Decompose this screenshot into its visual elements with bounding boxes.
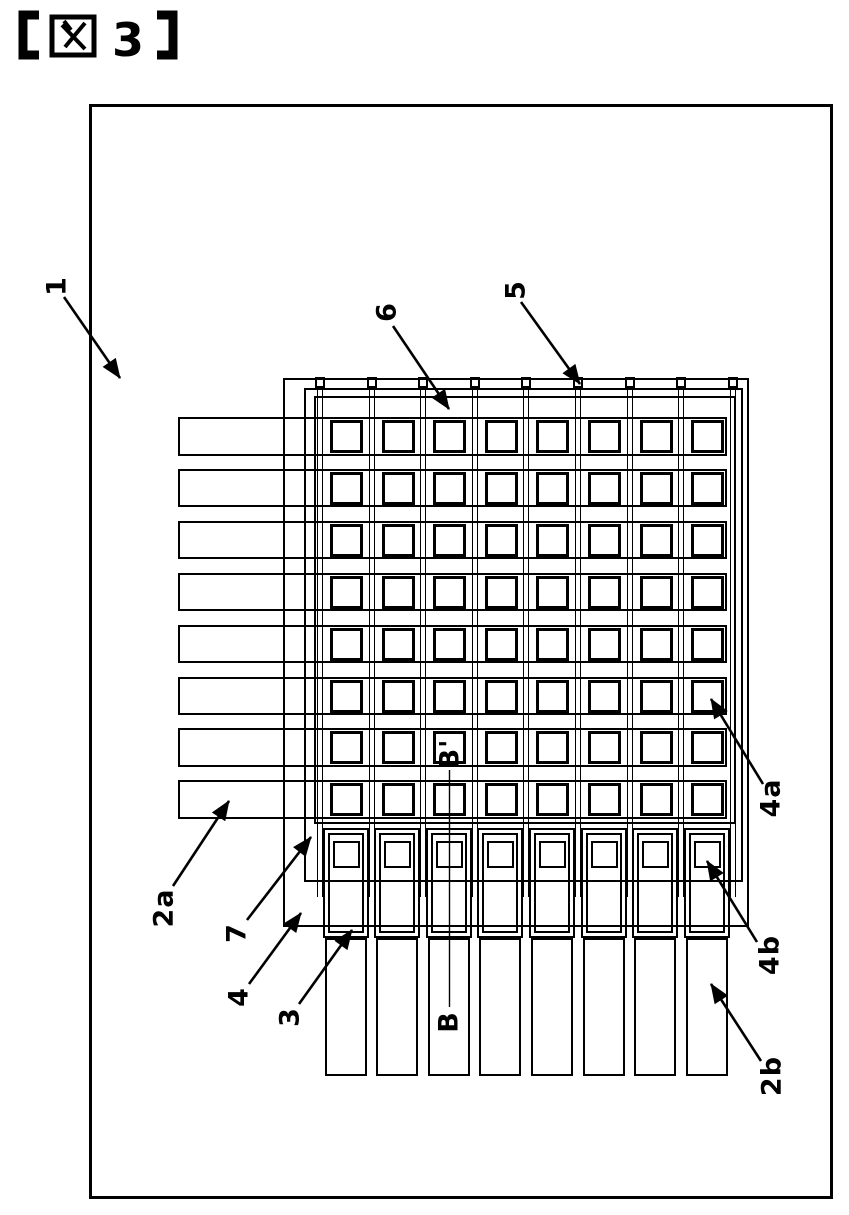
pixel-electrode-square — [485, 731, 518, 764]
pixel-electrode-square — [433, 628, 466, 661]
column-wire — [678, 386, 684, 897]
pixel-electrode-square — [640, 524, 673, 557]
label-4: 4 — [224, 987, 255, 1007]
pixel-electrode-square — [640, 783, 673, 816]
bottom-terminal-bar — [634, 938, 676, 1076]
pixel-electrode-square — [382, 628, 415, 661]
bottom-terminal-bar — [531, 938, 573, 1076]
pixel-electrode-square — [588, 731, 621, 764]
kanji-zu-glyph — [52, 17, 94, 55]
pixel-electrode-square — [640, 576, 673, 609]
pixel-electrode-square — [691, 680, 724, 713]
column-wire — [472, 386, 478, 897]
bracket-open-glyph — [23, 15, 39, 55]
bottom-terminal-bar — [325, 938, 367, 1076]
pixel-electrode-square — [433, 783, 466, 816]
bottom-terminal-bar — [428, 938, 470, 1076]
pixel-electrode-square — [382, 731, 415, 764]
label-4a: 4a — [756, 778, 787, 817]
label-6: 6 — [372, 302, 403, 322]
pixel-electrode-square — [588, 524, 621, 557]
column-wire — [575, 386, 581, 897]
pixel-electrode-square — [640, 420, 673, 453]
figure-title: 3 — [12, 8, 184, 68]
pixel-electrode-square — [330, 576, 363, 609]
pixel-electrode-square — [382, 524, 415, 557]
pixel-electrode-square — [640, 472, 673, 505]
pixel-electrode-square — [485, 472, 518, 505]
column-wire — [317, 386, 323, 897]
pad-contact-square — [436, 841, 463, 868]
pixel-electrode-square — [536, 680, 569, 713]
pixel-electrode-square — [330, 472, 363, 505]
pixel-electrode-square — [536, 472, 569, 505]
pixel-electrode-square — [485, 628, 518, 661]
pixel-electrode-square — [588, 420, 621, 453]
pixel-electrode-square — [382, 783, 415, 816]
pixel-electrode-square — [433, 524, 466, 557]
column-wire — [420, 386, 426, 897]
label-4b: 4b — [755, 935, 786, 975]
pixel-electrode-square — [640, 680, 673, 713]
pixel-electrode-square — [433, 420, 466, 453]
pixel-electrode-square — [382, 472, 415, 505]
bottom-terminal-bar — [583, 938, 625, 1076]
wire-top-cap — [728, 377, 738, 388]
label-B: B — [434, 1011, 465, 1033]
pixel-electrode-square — [691, 731, 724, 764]
pixel-electrode-square — [691, 783, 724, 816]
label-2a: 2a — [149, 888, 180, 927]
pad-contact-square — [642, 841, 669, 868]
pixel-electrode-square — [691, 628, 724, 661]
pixel-electrode-square — [536, 420, 569, 453]
pixel-electrode-square — [330, 680, 363, 713]
pad-contact-square — [333, 841, 360, 868]
pad-contact-square — [487, 841, 514, 868]
label-5: 5 — [501, 280, 532, 300]
patent-figure-page: 3 12a2b344a4b567BB' — [0, 0, 849, 1215]
pixel-electrode-square — [330, 524, 363, 557]
pixel-electrode-square — [588, 783, 621, 816]
figure-number: 3 — [112, 13, 144, 64]
wire-top-cap — [676, 377, 686, 388]
pixel-electrode-square — [433, 680, 466, 713]
wire-top-cap — [573, 377, 583, 388]
pixel-electrode-square — [330, 628, 363, 661]
pixel-electrode-square — [485, 783, 518, 816]
pixel-electrode-square — [330, 783, 363, 816]
pad-contact-square — [591, 841, 618, 868]
pad-contact-square — [384, 841, 411, 868]
pad-contact-square — [694, 841, 721, 868]
pixel-electrode-square — [433, 576, 466, 609]
pixel-electrode-square — [330, 420, 363, 453]
pixel-electrode-square — [382, 420, 415, 453]
pixel-electrode-square — [640, 628, 673, 661]
wire-top-cap — [315, 377, 325, 388]
pixel-electrode-square — [588, 472, 621, 505]
pixel-electrode-square — [588, 680, 621, 713]
pixel-electrode-square — [536, 628, 569, 661]
pixel-electrode-square — [536, 731, 569, 764]
bracket-close-glyph — [157, 15, 173, 55]
wire-top-cap — [418, 377, 428, 388]
label-7: 7 — [222, 923, 253, 943]
pixel-electrode-square — [433, 472, 466, 505]
column-wire — [627, 386, 633, 897]
pixel-electrode-square — [691, 472, 724, 505]
column-wire — [523, 386, 529, 897]
pixel-electrode-square — [485, 524, 518, 557]
pixel-electrode-square — [640, 731, 673, 764]
pixel-electrode-square — [485, 576, 518, 609]
pad-contact-square — [539, 841, 566, 868]
pixel-electrode-square — [382, 576, 415, 609]
pixel-electrode-square — [536, 576, 569, 609]
pixel-electrode-square — [588, 628, 621, 661]
pixel-electrode-square — [485, 680, 518, 713]
pixel-electrode-square — [330, 731, 363, 764]
wire-top-cap — [470, 377, 480, 388]
wire-top-cap — [367, 377, 377, 388]
wire-top-cap — [521, 377, 531, 388]
pixel-electrode-square — [485, 420, 518, 453]
bottom-terminal-bar — [686, 938, 728, 1076]
column-wire — [730, 386, 736, 897]
pixel-electrode-square — [536, 524, 569, 557]
bottom-terminal-bar — [376, 938, 418, 1076]
label-2b: 2b — [757, 1056, 788, 1096]
pixel-electrode-square — [536, 783, 569, 816]
pixel-electrode-square — [588, 576, 621, 609]
figure-title-glyphs: 3 — [12, 8, 184, 64]
pixel-electrode-square — [691, 576, 724, 609]
pixel-electrode-square — [691, 420, 724, 453]
label-Bp: B' — [435, 739, 466, 770]
bottom-terminal-bar — [479, 938, 521, 1076]
label-3: 3 — [275, 1007, 306, 1027]
column-wire — [369, 386, 375, 897]
pixel-electrode-square — [382, 680, 415, 713]
label-1: 1 — [42, 276, 73, 296]
pixel-electrode-square — [691, 524, 724, 557]
wire-top-cap — [625, 377, 635, 388]
